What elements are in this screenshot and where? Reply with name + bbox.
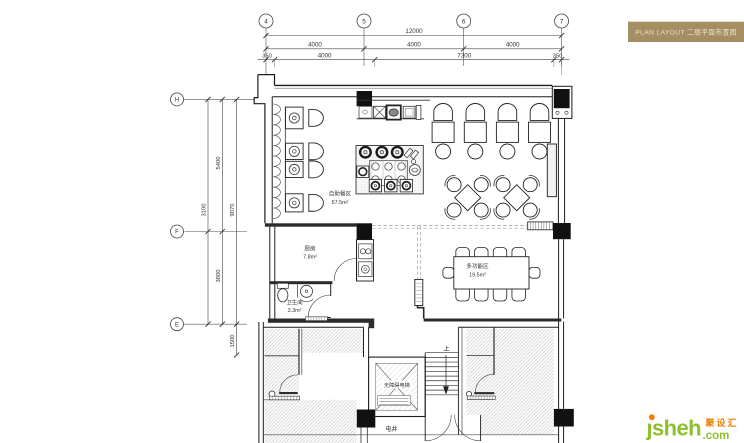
svg-text:PLAN LAYOUT 二层平面布置图: PLAN LAYOUT 二层平面布置图 [635, 27, 736, 36]
svg-text:1500: 1500 [230, 335, 236, 348]
svg-text:卫生间: 卫生间 [286, 299, 302, 307]
svg-text:7: 7 [560, 18, 564, 25]
svg-text:3800: 3800 [216, 270, 222, 283]
svg-text:F: F [175, 230, 179, 236]
svg-text:无障碍电梯: 无障碍电梯 [384, 381, 410, 389]
svg-text:19.5m²: 19.5m² [469, 273, 486, 279]
svg-text:5400: 5400 [216, 157, 222, 170]
svg-text:4000: 4000 [407, 41, 421, 48]
svg-text:4000: 4000 [308, 41, 322, 48]
svg-text:9070: 9070 [230, 204, 236, 217]
svg-text:6: 6 [462, 18, 466, 25]
svg-text:电井: 电井 [385, 425, 397, 433]
svg-text:7.8m²: 7.8m² [303, 255, 317, 261]
svg-text:4000: 4000 [506, 41, 520, 48]
svg-text:5: 5 [362, 18, 366, 25]
svg-text:7300: 7300 [457, 52, 471, 59]
svg-text:4000: 4000 [318, 52, 332, 59]
svg-text:多功能区: 多功能区 [466, 262, 489, 270]
svg-text:4: 4 [264, 18, 268, 25]
svg-text:厨房: 厨房 [304, 245, 316, 253]
svg-text:12000: 12000 [405, 28, 423, 35]
svg-text:3.3m²: 3.3m² [288, 308, 302, 314]
svg-text:上: 上 [443, 345, 449, 353]
svg-text:350: 350 [553, 53, 563, 59]
svg-text:350: 350 [262, 53, 272, 59]
svg-text:3100: 3100 [202, 204, 208, 217]
svg-text:57.5m²: 57.5m² [332, 200, 349, 206]
svg-text:聚设汇: 聚设汇 [705, 417, 739, 428]
svg-text:E: E [175, 322, 179, 328]
svg-text:自助餐区: 自助餐区 [329, 190, 352, 198]
svg-text:H: H [175, 98, 179, 104]
svg-text:.com: .com [703, 430, 730, 442]
